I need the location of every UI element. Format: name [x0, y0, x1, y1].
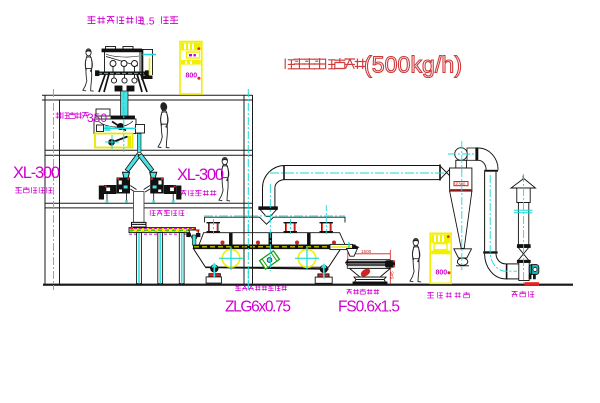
svg-text:P300: P300	[456, 181, 466, 186]
svg-text:350: 350	[87, 111, 107, 125]
svg-text:XL-300: XL-300	[177, 166, 224, 184]
svg-text:ZLG6x0.75: ZLG6x0.75	[225, 299, 291, 316]
svg-text:XL-300: XL-300	[13, 164, 60, 182]
svg-text:1.5: 1.5	[140, 16, 155, 28]
svg-text:800: 800	[436, 270, 448, 277]
svg-text:1500: 1500	[361, 249, 372, 254]
svg-text:(500kg/h): (500kg/h)	[364, 52, 462, 78]
svg-text:FS0.6x1.5: FS0.6x1.5	[338, 299, 400, 316]
svg-text:545: 545	[390, 271, 395, 279]
svg-text:800: 800	[186, 73, 198, 80]
